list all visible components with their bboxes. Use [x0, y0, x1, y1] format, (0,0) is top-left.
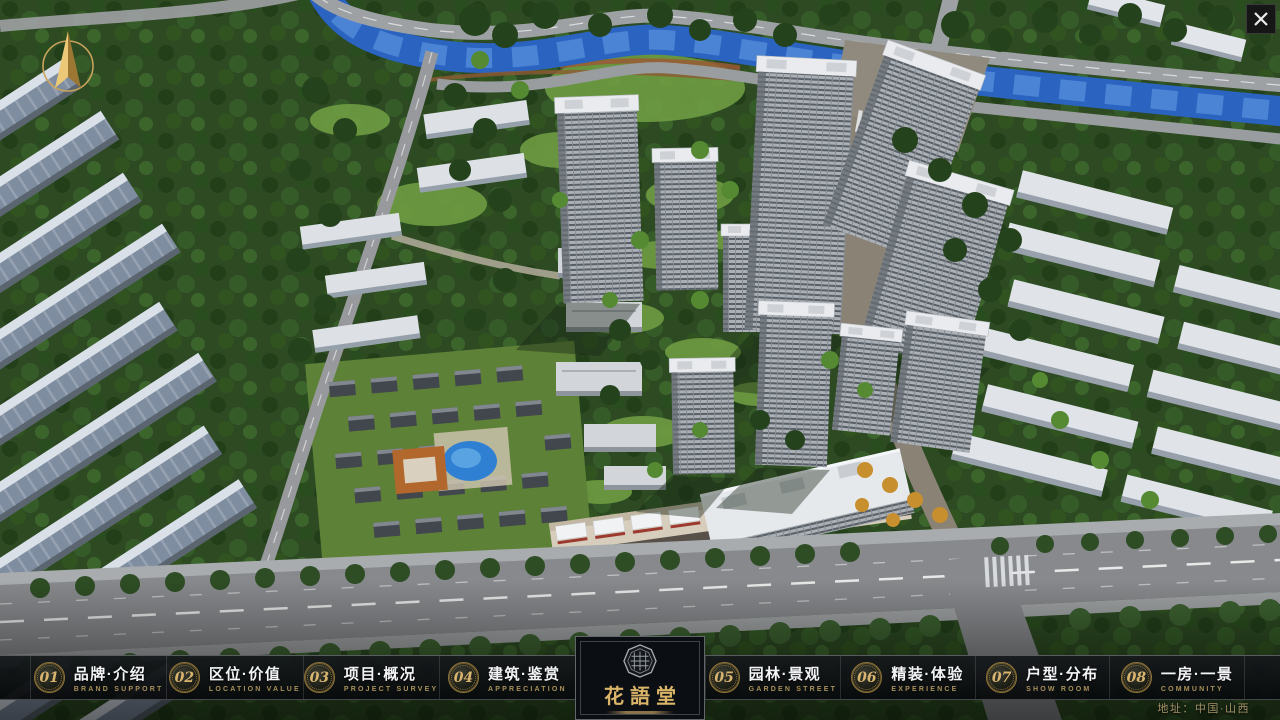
nav-number-badge: 07	[986, 662, 1017, 693]
nav-label-en: COMMUNITY	[1161, 686, 1224, 693]
masterplan-render	[0, 0, 1280, 720]
nav-label-en: LOCATION VALUE	[209, 686, 301, 693]
nav-label-en: SHOW ROOM	[1026, 686, 1091, 693]
nav-item-brand-intro[interactable]: 01 品牌·介绍BRAND SUPPORT	[30, 656, 166, 699]
nav-label-en: EXPERIENCE	[891, 686, 958, 693]
nav-label-zh: 精装·体验	[891, 663, 964, 684]
nav-label-zh: 一房·一景	[1161, 663, 1234, 684]
nav-number: 04	[454, 671, 473, 685]
nav-number: 06	[857, 671, 876, 685]
nav-label-en: BRAND SUPPORT	[74, 686, 164, 693]
nav-item-interior-experience[interactable]: 06 精装·体验EXPERIENCE	[840, 656, 975, 699]
nav-number-badge: 04	[448, 662, 479, 693]
nav-label-zh: 品牌·介绍	[74, 663, 147, 684]
nav-item-room-view[interactable]: 08 一房·一景COMMUNITY	[1109, 656, 1245, 699]
nav-label-zh: 建筑·鉴赏	[488, 663, 561, 684]
brand-subtitle-rule	[606, 711, 674, 714]
compass-north-icon	[38, 28, 98, 98]
nav-number-badge: 03	[304, 662, 335, 693]
nav-item-location-value[interactable]: 02 区位·价值LOCATION VALUE	[166, 656, 302, 699]
nav-label-zh: 户型·分布	[1026, 663, 1099, 684]
sales-presentation-screen: 01 品牌·介绍BRAND SUPPORT 02 区位·价值LOCATION V…	[0, 0, 1280, 720]
nav-number-badge: 05	[709, 662, 740, 693]
project-address: 地址：中国·山西	[1157, 700, 1250, 716]
navbar-right-group: 05 园林·景观GARDEN STREET 06 精装·体验EXPERIENCE…	[705, 656, 1245, 699]
nav-item-landscape[interactable]: 05 园林·景观GARDEN STREET	[705, 656, 840, 699]
nav-number: 07	[992, 671, 1011, 685]
brand-title: 花語堂	[598, 686, 682, 706]
brand-seal-icon	[623, 644, 657, 683]
close-button[interactable]	[1246, 4, 1276, 34]
nav-item-architecture[interactable]: 04 建筑·鉴赏APPRECIATION	[439, 656, 575, 699]
nav-number-badge: 08	[1121, 662, 1152, 693]
nav-label-zh: 园林·景观	[749, 663, 822, 684]
nav-number: 03	[310, 671, 329, 685]
nav-item-floorplan-distribution[interactable]: 07 户型·分布SHOW ROOM	[975, 656, 1110, 699]
nav-item-project-overview[interactable]: 03 项目·概况PROJECT SURVEY	[303, 656, 439, 699]
nav-label-en: APPRECIATION	[488, 686, 567, 693]
nav-number: 01	[40, 671, 59, 685]
nav-label-en: PROJECT SURVEY	[344, 686, 438, 693]
nav-number: 05	[714, 671, 733, 685]
brand-logo-panel: 花語堂	[575, 636, 705, 720]
nav-label-en: GARDEN STREET	[749, 686, 838, 693]
aerial-masterplan-view[interactable]	[0, 0, 1280, 720]
nav-number: 08	[1127, 671, 1146, 685]
nav-number-badge: 02	[169, 662, 200, 693]
nav-number-badge: 06	[851, 662, 882, 693]
close-icon	[1252, 10, 1270, 28]
navbar-left-group: 01 品牌·介绍BRAND SUPPORT 02 区位·价值LOCATION V…	[30, 656, 575, 699]
nav-number: 02	[175, 671, 194, 685]
nav-number-badge: 01	[34, 662, 65, 693]
nav-label-zh: 区位·价值	[209, 663, 282, 684]
nav-label-zh: 项目·概况	[344, 663, 417, 684]
